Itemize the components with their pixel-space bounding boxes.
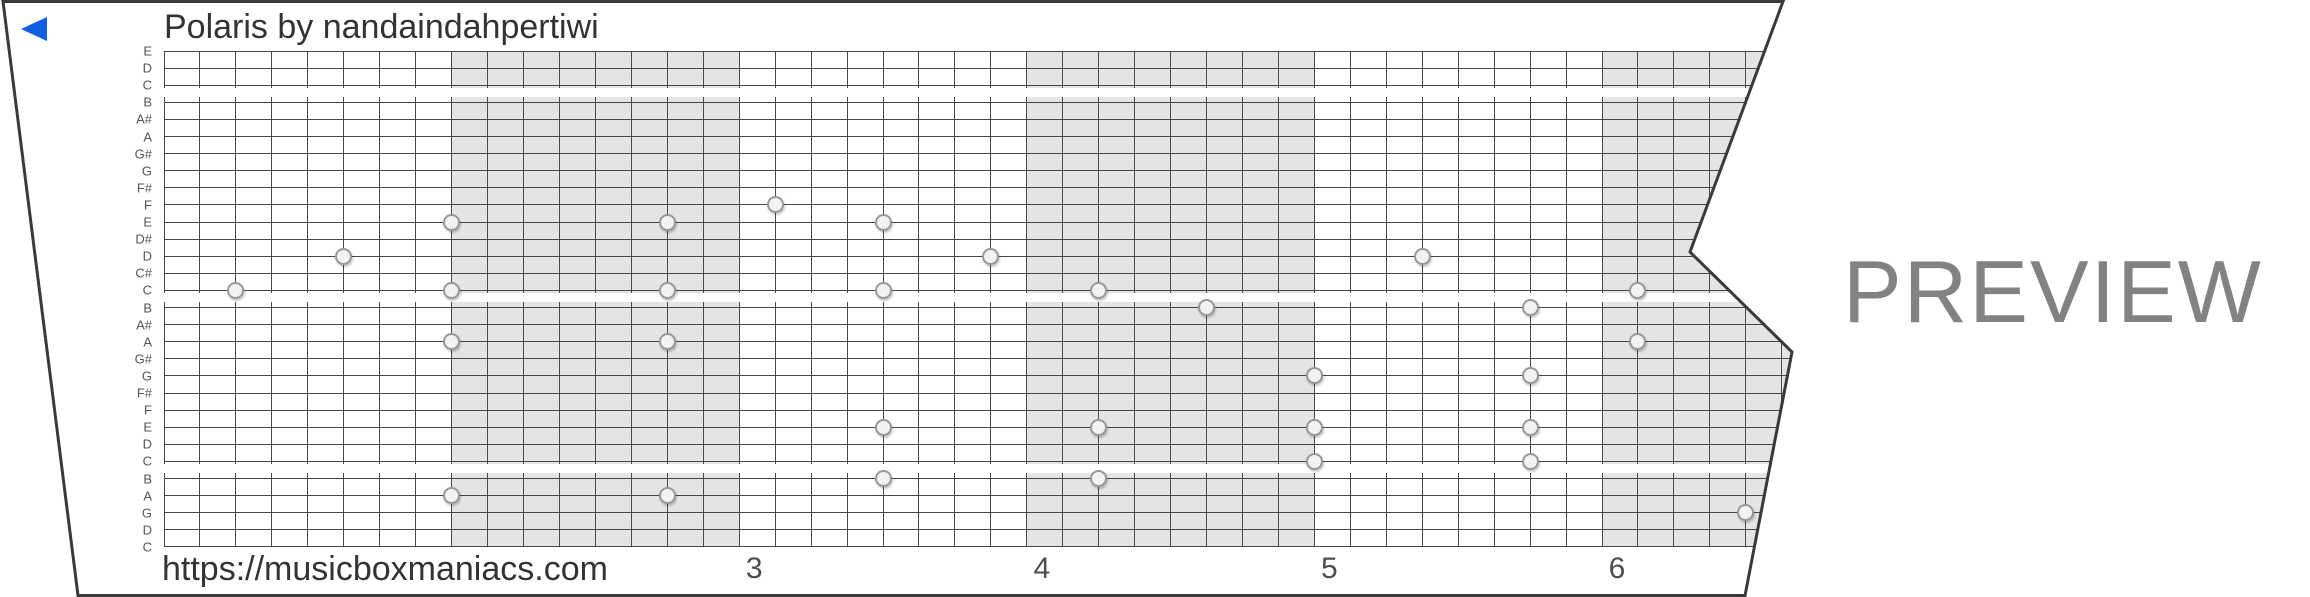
note-label: C [90, 284, 152, 297]
note-label: D [90, 438, 152, 451]
measure-number: 3 [746, 552, 763, 586]
note-dot [875, 470, 892, 487]
measure-number: 6 [1609, 552, 1626, 586]
grid-line [164, 393, 1800, 394]
grid-line [164, 529, 1800, 530]
note-dot [875, 282, 892, 299]
note-label: A [90, 130, 152, 143]
note-label: C [90, 540, 152, 553]
note-label: F# [90, 181, 152, 194]
footer-url: https://musicboxmaniacs.com [162, 550, 608, 589]
octave-stripe [164, 464, 1800, 473]
note-label: D [90, 523, 152, 536]
grid-line [164, 512, 1800, 513]
note-dot [1522, 367, 1539, 384]
note-dot [875, 419, 892, 436]
note-label: E [90, 216, 152, 229]
grid-line [164, 68, 1800, 69]
note-label: A# [90, 113, 152, 126]
measure-number: 5 [1321, 552, 1338, 586]
note-dot [1090, 282, 1107, 299]
grid-line [164, 375, 1800, 376]
note-label: G [90, 506, 152, 519]
note-label: D [90, 250, 152, 263]
note-label: G [90, 164, 152, 177]
grid-line [1781, 51, 1782, 547]
note-dot [982, 248, 999, 265]
note-dot [1306, 453, 1323, 470]
note-dot [1522, 299, 1539, 316]
grid-line [164, 546, 1800, 547]
note-label: D# [90, 233, 152, 246]
note-label: F [90, 404, 152, 417]
grid-line [164, 136, 1800, 137]
note-dot [767, 196, 784, 213]
grid-line [164, 51, 1800, 52]
note-label: C# [90, 267, 152, 280]
note-label: B [90, 96, 152, 109]
note-label: C [90, 455, 152, 468]
grid-line [164, 307, 1800, 308]
octave-stripe [164, 293, 1800, 302]
grid-line [164, 444, 1800, 445]
note-label: A [90, 335, 152, 348]
grid-line [164, 324, 1800, 325]
grid-line [164, 273, 1800, 274]
note-dot [443, 282, 460, 299]
grid-line [164, 410, 1800, 411]
note-label: G# [90, 352, 152, 365]
grid-line [164, 119, 1800, 120]
note-dot [659, 214, 676, 231]
grid-line [164, 461, 1800, 462]
note-label: G [90, 369, 152, 382]
note-dot [659, 487, 676, 504]
note-dot [659, 333, 676, 350]
note-label: F# [90, 387, 152, 400]
note-dot [443, 214, 460, 231]
preview-watermark: PREVIEW [1843, 248, 2263, 336]
note-label: F [90, 198, 152, 211]
preview-page: EDCBA#AG#GF#FED#DC#CBA#AG#GF#FEDCBAGDC P… [0, 0, 2310, 597]
note-dot [659, 282, 676, 299]
grid-line [164, 222, 1800, 223]
grid-line [164, 478, 1800, 479]
grid-line [164, 495, 1800, 496]
note-label: D [90, 62, 152, 75]
note-dot [1414, 248, 1431, 265]
strip-title: Polaris by nandaindahpertiwi [164, 8, 599, 47]
play-icon[interactable] [21, 17, 47, 41]
note-label: B [90, 301, 152, 314]
note-label: B [90, 472, 152, 485]
note-label: C [90, 79, 152, 92]
grid-line [164, 170, 1800, 171]
note-dot [1090, 419, 1107, 436]
note-dot [1306, 367, 1323, 384]
grid-line [164, 187, 1800, 188]
octave-stripe [164, 88, 1800, 97]
note-label: A [90, 489, 152, 502]
note-dot [1522, 453, 1539, 470]
grid-line [164, 239, 1800, 240]
grid-line [164, 153, 1800, 154]
note-dot [1198, 299, 1215, 316]
grid-line [164, 102, 1800, 103]
grid-line [164, 204, 1800, 205]
note-label: G# [90, 147, 152, 160]
grid-line [164, 290, 1800, 291]
measure-number: 4 [1033, 552, 1050, 586]
note-dot [875, 214, 892, 231]
note-label: E [90, 45, 152, 58]
note-dot [1522, 419, 1539, 436]
note-label: E [90, 421, 152, 434]
grid-line [164, 427, 1800, 428]
note-dot [335, 248, 352, 265]
grid-line [164, 341, 1800, 342]
grid-line [164, 85, 1800, 86]
note-label: A# [90, 318, 152, 331]
grid-line [1817, 51, 1818, 547]
note-dot [1306, 419, 1323, 436]
grid-line [164, 358, 1800, 359]
